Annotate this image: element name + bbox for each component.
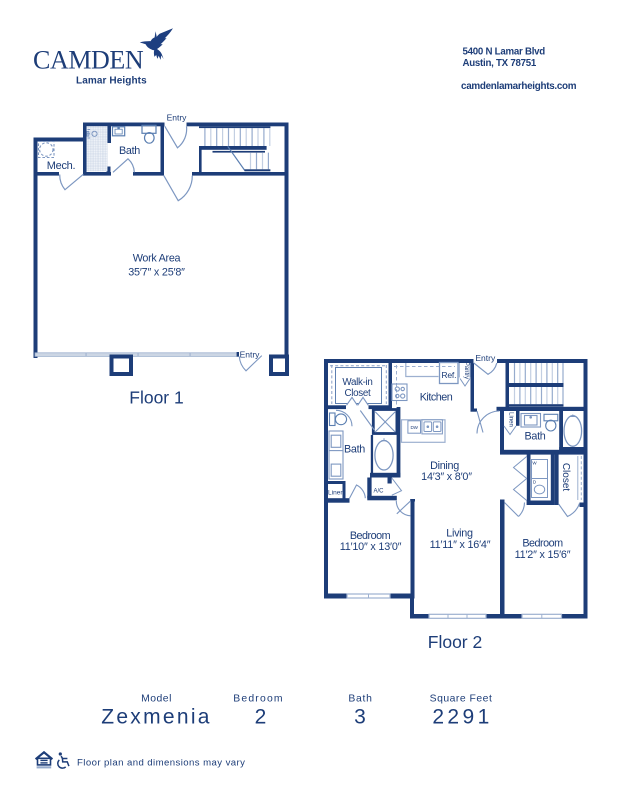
svg-text:Linen: Linen — [328, 490, 344, 497]
svg-text:Closet: Closet — [560, 463, 571, 492]
svg-text:camdenlamarheights.com: camdenlamarheights.com — [461, 81, 577, 92]
svg-text:11′2″ x 15′6″: 11′2″ x 15′6″ — [515, 549, 571, 561]
svg-text:Mech.: Mech. — [47, 160, 76, 172]
svg-text:Work Area: Work Area — [133, 253, 181, 265]
svg-text:Bedroom: Bedroom — [350, 530, 391, 542]
svg-text:2291: 2291 — [432, 706, 492, 729]
svg-text:DW: DW — [410, 425, 418, 430]
svg-text:Floor 2: Floor 2 — [428, 632, 482, 652]
svg-text:5400 N Lamar Blvd: 5400 N Lamar Blvd — [463, 47, 546, 58]
svg-text:Entry: Entry — [167, 112, 188, 122]
svg-text:Entry: Entry — [475, 353, 496, 363]
svg-text:Bath: Bath — [348, 694, 372, 705]
svg-text:Bath: Bath — [119, 145, 140, 157]
svg-text:Bath: Bath — [524, 431, 545, 443]
svg-text:CAMDEN: CAMDEN — [33, 46, 144, 75]
svg-text:Walk-in: Walk-in — [342, 377, 372, 388]
svg-text:Entry: Entry — [240, 350, 261, 360]
svg-text:Floor 1: Floor 1 — [129, 388, 183, 408]
svg-text:Bedroom: Bedroom — [522, 538, 563, 550]
svg-text:11′10″ x 13′0″: 11′10″ x 13′0″ — [340, 541, 402, 553]
svg-text:11′11″ x 16′4″: 11′11″ x 16′4″ — [430, 539, 491, 551]
svg-text:Pantry: Pantry — [463, 362, 469, 379]
svg-text:Square Feet: Square Feet — [430, 694, 493, 705]
svg-text:35′7″ x 25′8″: 35′7″ x 25′8″ — [128, 267, 185, 279]
svg-text:Zexmenia: Zexmenia — [101, 706, 212, 729]
svg-text:Bath: Bath — [344, 444, 365, 456]
svg-text:Model: Model — [141, 694, 172, 705]
svg-text:14′3″ x 8′0″: 14′3″ x 8′0″ — [421, 471, 472, 483]
svg-text:Linen: Linen — [508, 412, 514, 427]
svg-text:Kitchen: Kitchen — [420, 392, 453, 404]
svg-text:Living: Living — [446, 527, 473, 539]
svg-text:2: 2 — [255, 706, 267, 729]
svg-text:Ref.: Ref. — [441, 370, 456, 380]
svg-text:W: W — [532, 461, 537, 466]
svg-text:Bedroom: Bedroom — [233, 694, 284, 705]
svg-text:D: D — [533, 480, 537, 485]
svg-text:Floor plan and dimensions may: Floor plan and dimensions may vary — [77, 758, 245, 769]
svg-text:Closet: Closet — [345, 388, 372, 399]
svg-text:Lamar Heights: Lamar Heights — [76, 76, 147, 87]
svg-text:3: 3 — [354, 706, 366, 729]
svg-text:A/C: A/C — [373, 489, 384, 495]
svg-text:Austin, TX 78751: Austin, TX 78751 — [463, 58, 537, 69]
